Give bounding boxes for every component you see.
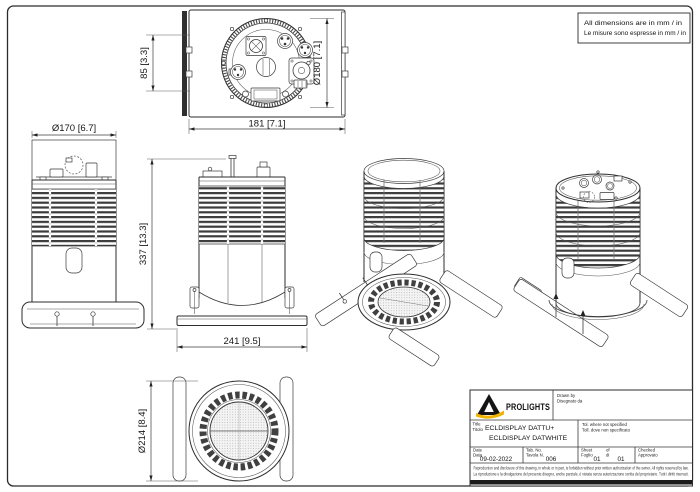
encoder-knob [257,58,276,77]
date-value: 09-02-2022 [480,456,513,463]
heatsink-fins-iso1 [364,176,444,250]
note-box: All dimensions are in mm / in Le misure … [578,13,690,43]
view-iso-bottom [312,159,504,368]
brand-name: PROLIGHTS [506,402,550,412]
title-label-it: Titolo [473,427,484,432]
iso2-rail-right [629,272,689,318]
view-top: 85 [3.3] Ø180 [7.1] 181 [7.1] [139,10,348,134]
heatsink-fins-iso2 [556,194,640,268]
tolerance-label-en: Tol. where not specified [582,422,628,427]
title-block-bottom-bar [471,480,693,485]
vent-grille [294,80,307,88]
xlr-connector-1 [278,34,293,49]
disclaimer-line-2: La riproduzione e la divulgazione del pr… [474,472,689,477]
display-window [251,88,280,101]
dim-side-height: 337 [13.3] [138,223,149,265]
drawn-label-it: Disegnato da [557,399,583,404]
heatsink-fins-side [32,189,116,246]
drawn-label-en: Drawn by [557,393,576,398]
product-name-line2: ECLDISPLAY DATWHITE [489,435,568,442]
mounting-rail-left [173,377,186,481]
dim-front-width: 241 [9.5] [224,336,261,347]
iso1-rail-front [388,327,440,367]
body-slot [66,248,82,273]
trim-flange-front [177,316,307,326]
disclaimer-line-1: Reproduction and disclosure of this draw… [474,466,689,471]
tolerance-label-it: Toll. dove non specificato [582,428,631,433]
of-value: 01 [617,456,625,463]
note-line-1: All dimensions are in mm / in [584,20,682,27]
view-iso-top [513,171,689,348]
xlr-connector-2 [298,43,313,58]
dim-bottom-diameter: Ø214 [8.4] [137,409,148,453]
ceiling-cutout-arc [199,292,285,306]
dim-top-diameter: Ø180 [7.1] [312,41,323,85]
tab-label-it: Tavola N. [526,453,544,458]
technical-drawing-sheet: 85 [3.3] Ø180 [7.1] 181 [7.1] Ø170 [6.7] [0,0,700,492]
view-bottom: Ø214 [8.4] [137,377,293,481]
enter-button [283,91,289,97]
sheet-value: 01 [593,456,601,463]
title-label-en: Title [473,422,482,427]
view-front: 241 [9.5] [177,156,307,353]
product-name-line1: ECLDISPLAY DATTU+ [485,425,554,432]
dim-side-diameter: Ø170 [6.7] [52,123,96,134]
menu-button [243,91,249,97]
checked-label-it: Approvato [638,453,658,458]
drawing-canvas: 85 [3.3] Ø180 [7.1] 181 [7.1] Ø170 [6.7] [0,0,700,492]
dim-top-height: 85 [3.3] [139,47,150,79]
title-block: PROLIGHTS Drawn by Disegnato da Title Ti… [470,390,693,486]
dim-top-width: 181 [7.1] [249,119,286,130]
of-label-it: di [606,453,609,458]
heatsink-fins-front [199,186,285,244]
note-line-2: Le misure sono espresse in mm / in [584,30,686,37]
tab-value: 006 [546,456,557,463]
sheet-label-it: Foglio [581,453,593,458]
powercon-in-connector [246,37,266,56]
